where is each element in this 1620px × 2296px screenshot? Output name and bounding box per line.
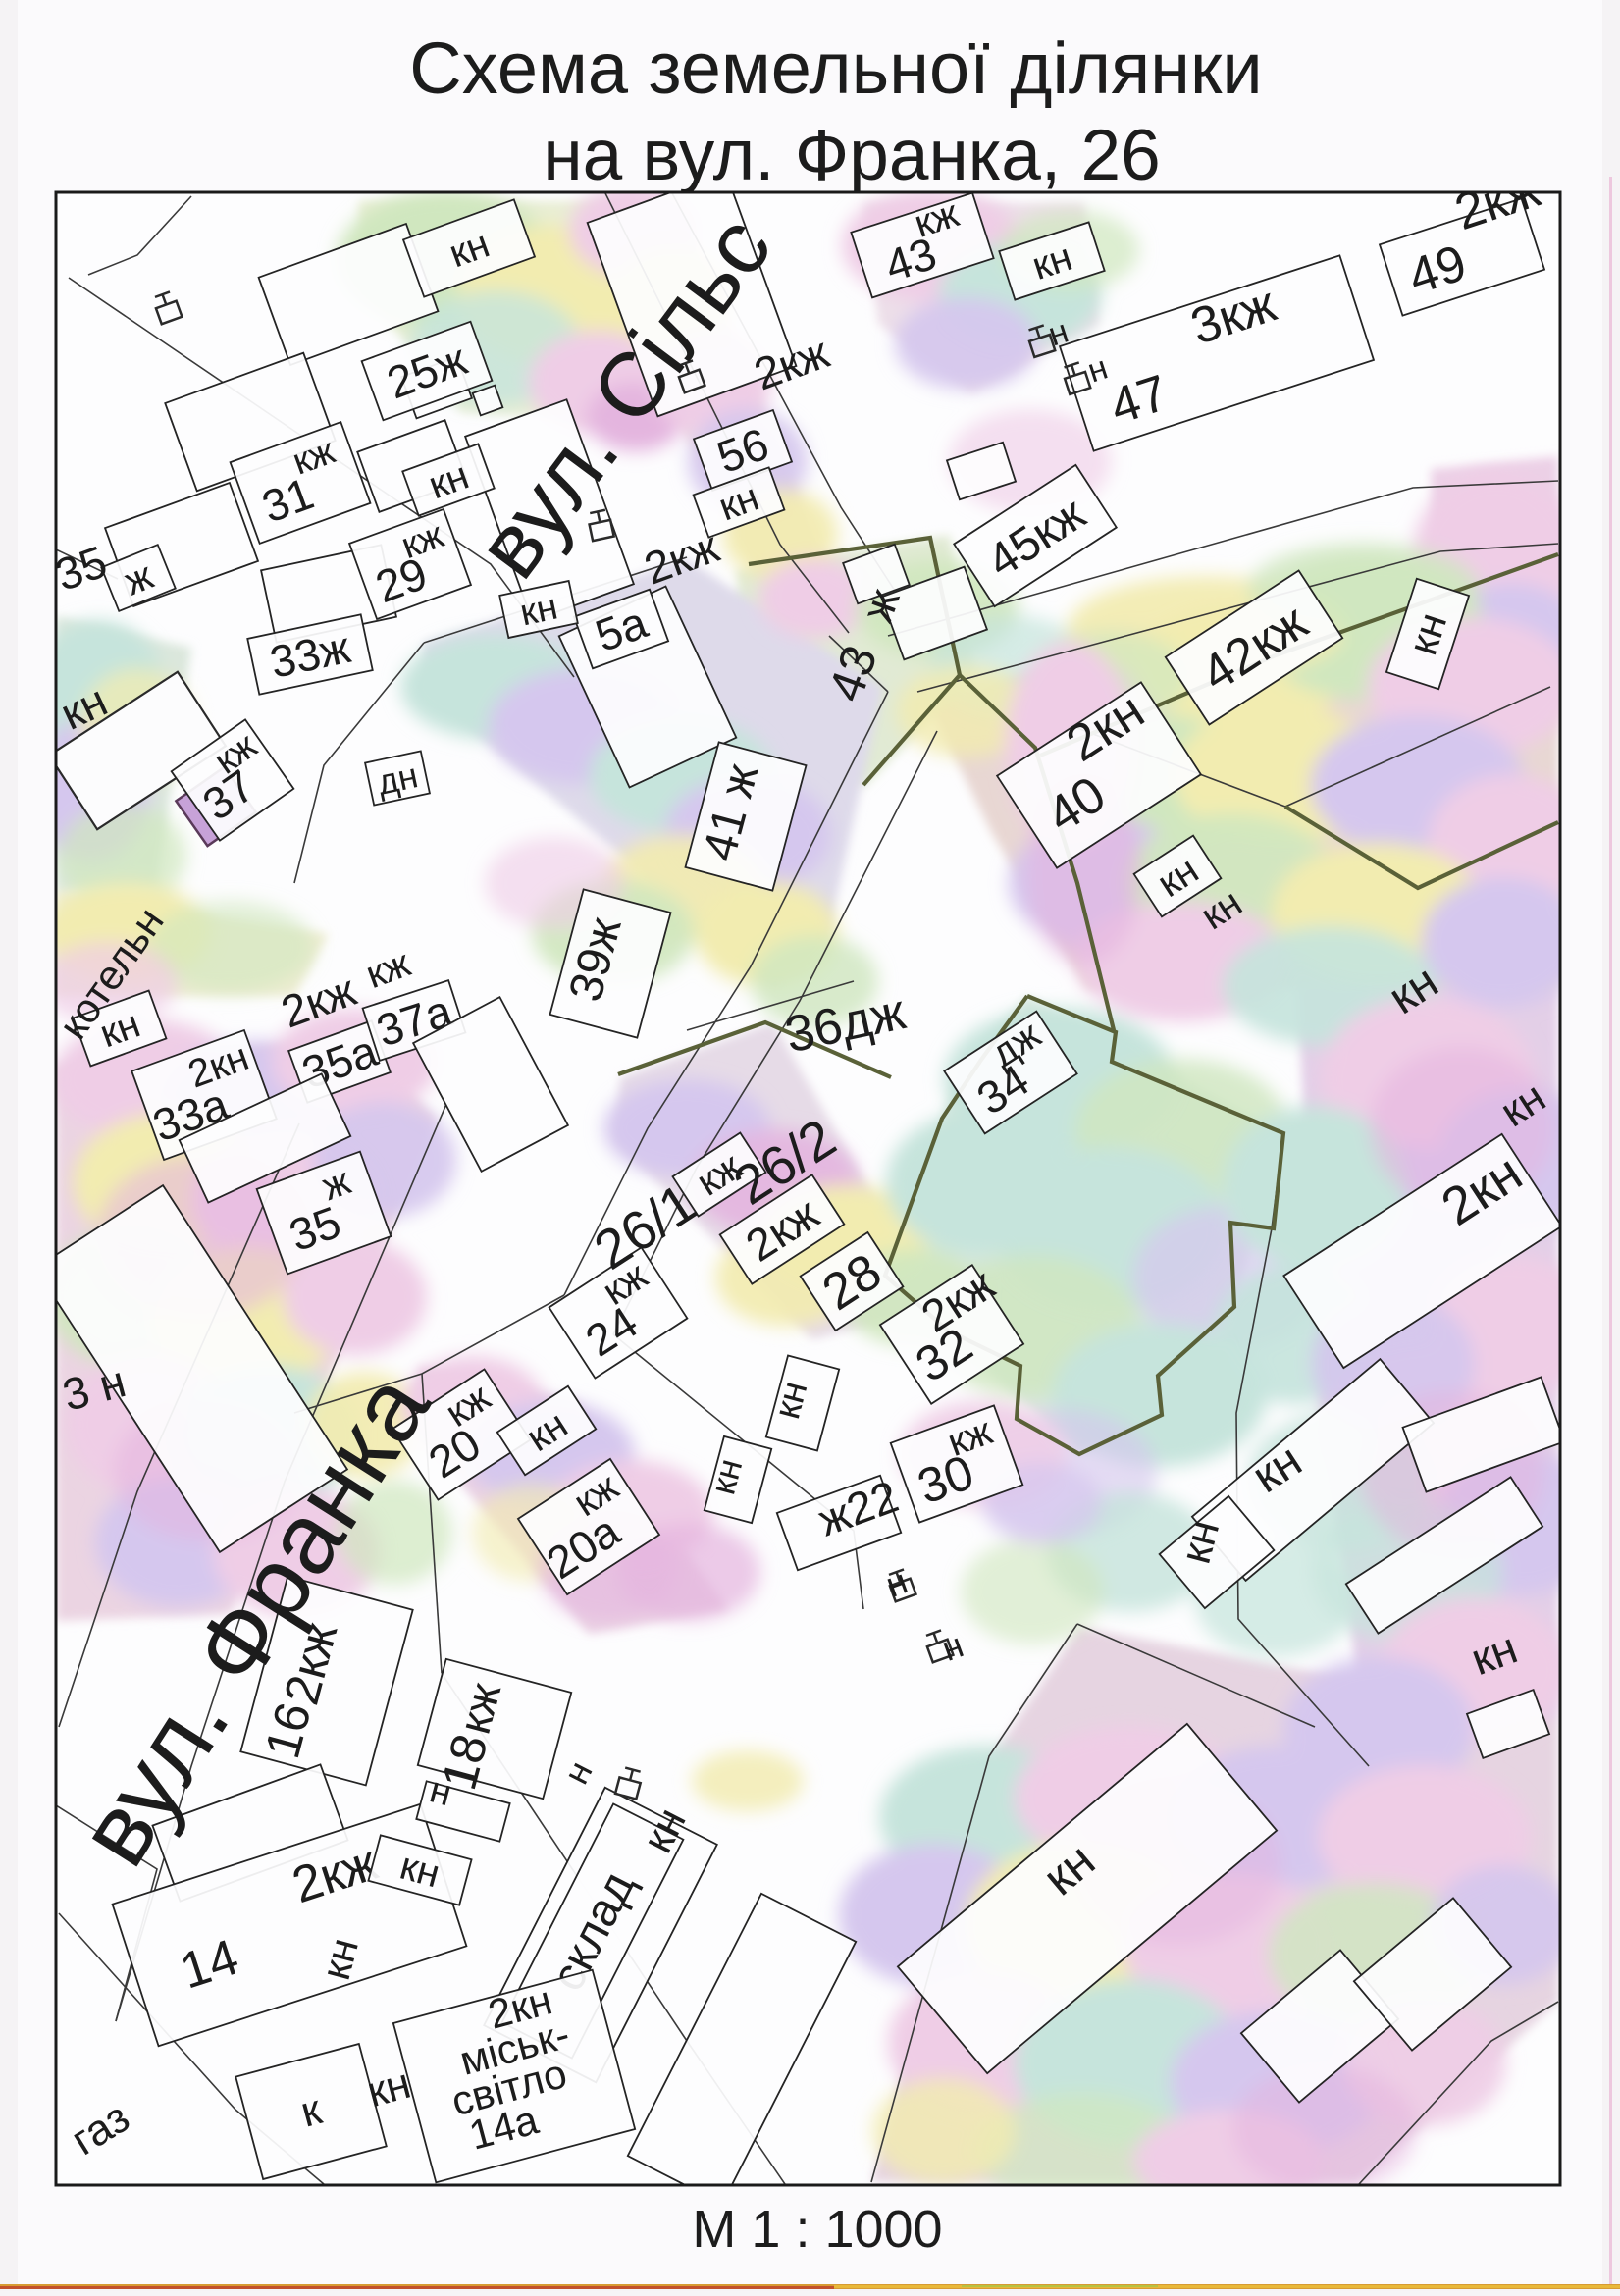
svg-text:дн: дн: [374, 755, 422, 803]
svg-text:М 1 : 1000: М 1 : 1000: [692, 2200, 942, 2259]
svg-text:на вул. Франка, 26: на вул. Франка, 26: [543, 116, 1160, 195]
svg-text:Схема земельної ділянки: Схема земельної ділянки: [409, 27, 1263, 109]
